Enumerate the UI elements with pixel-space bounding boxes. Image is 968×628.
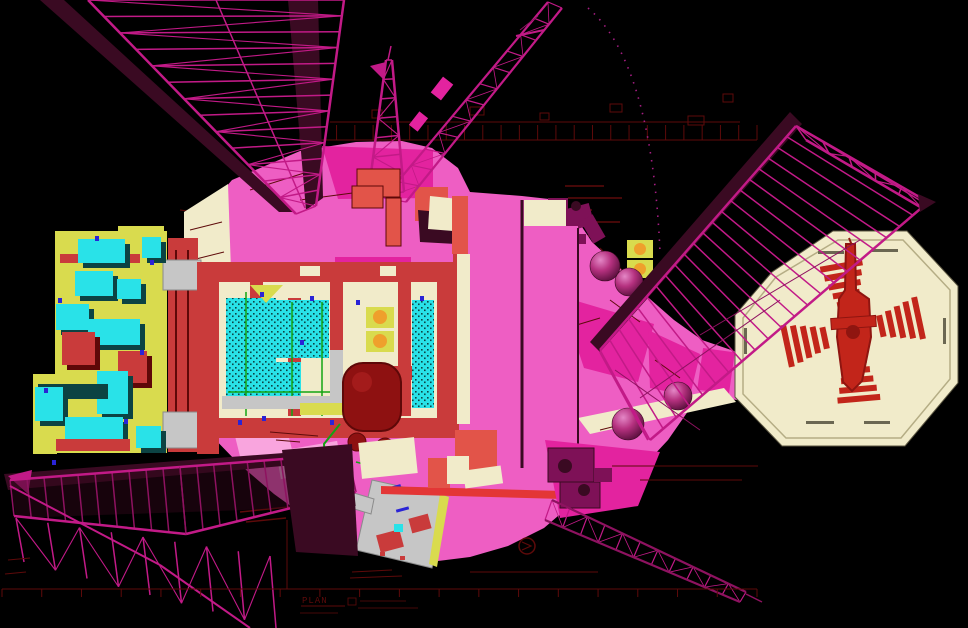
cad-viewport[interactable]: PLAN [0, 0, 968, 628]
pressure-vessel [343, 363, 401, 431]
sphere-tank [590, 251, 620, 281]
rotor-hub [846, 325, 860, 339]
tall-module-b [526, 226, 578, 466]
tall-module-a [470, 198, 522, 470]
cad-plan-drawing: PLAN [0, 0, 968, 628]
plan-annotation-label: PLAN [302, 596, 328, 606]
left-utility-module [33, 226, 203, 465]
